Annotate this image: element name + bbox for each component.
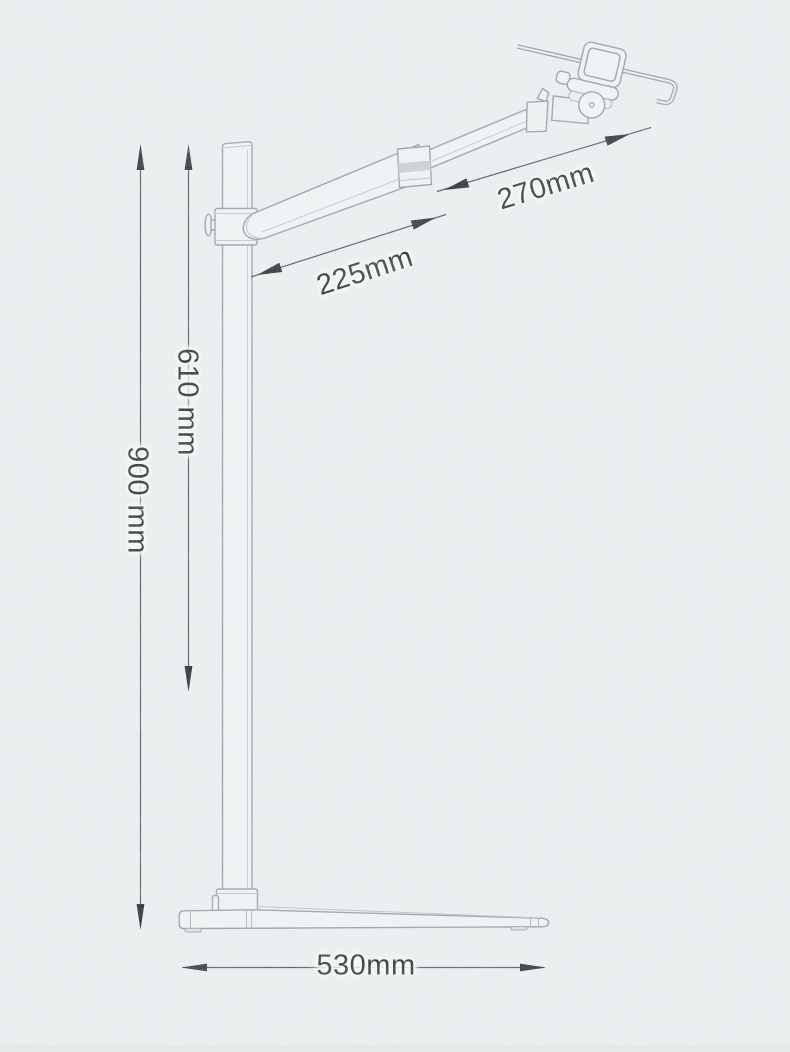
- dimension-label-base-length: 530mm: [316, 952, 415, 981]
- stand-line-art: [0, 0, 790, 1052]
- base-foot-left: [185, 928, 201, 932]
- upper-arm: [424, 110, 532, 170]
- dimension-label-pole-height: 610 mm: [173, 348, 202, 456]
- base-collar: [217, 889, 258, 912]
- photo-bottom-edge: [0, 1045, 790, 1052]
- pole: [223, 142, 253, 889]
- dimension-label-total-height: 900 mm: [123, 446, 152, 554]
- base: [179, 889, 548, 932]
- base-foot-right: [511, 927, 527, 930]
- base-slab: [179, 910, 548, 929]
- head-assembly: [518, 31, 676, 150]
- elbow-joint: [398, 146, 432, 188]
- product-dimension-diagram: 900 mm 610 mm 225mm 270mm 530mm: [0, 0, 790, 1052]
